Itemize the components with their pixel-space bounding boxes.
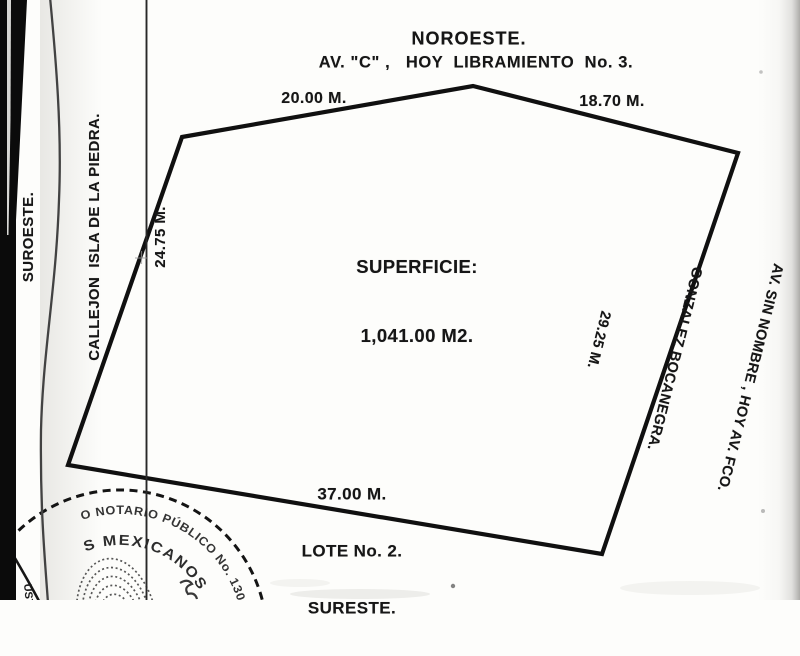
north-segment-right-dimension: 18.70 M. xyxy=(579,93,644,111)
east-street-label-line2: GONZALEZ BOCANEGRA. xyxy=(633,242,715,476)
south-lot-label: LOTE No. 2. xyxy=(302,542,403,561)
corner-stamp-text: UST. xyxy=(21,583,35,600)
north-segment-left-dimension: 20.00 M. xyxy=(281,90,346,108)
area-block: SUPERFICIE: 1,041.00 M2. xyxy=(356,209,478,393)
east-street-label-line1: AV. SIN NOMBRE , HOY AV. FCO. xyxy=(709,261,791,495)
west-side-labels: SUROESTE. CALLEJON ISLA DE LA PIEDRA. 24… xyxy=(0,113,216,361)
area-value: 1,041.00 M2. xyxy=(356,324,478,347)
south-side-labels: 37.00 M. LOTE No. 2. SURESTE. xyxy=(302,447,403,656)
west-direction-label: SUROESTE. xyxy=(18,113,40,361)
east-direction-label: NORESTE. xyxy=(785,279,800,513)
east-dimension-label: 29.25 M. xyxy=(558,223,640,457)
west-street-label: CALLEJON ISLA DE LA PIEDRA. xyxy=(84,113,106,361)
area-label: SUPERFICIE: xyxy=(356,255,478,278)
north-street-label: AV. "C" , HOY LIBRAMIENTO No. 3. xyxy=(319,54,633,73)
south-dimension-label: 37.00 M. xyxy=(302,485,403,504)
west-dimension-label: 24.75 M. xyxy=(150,113,172,361)
south-direction-label: SURESTE. xyxy=(302,599,403,618)
north-direction-label: NOROESTE. xyxy=(411,29,526,50)
seal-ring-text: O NOTARIO PÚBLICO No. 130 xyxy=(79,503,248,600)
scanned-plot-plan: O NOTARIO PÚBLICO No. 130 S MEXICANOS US… xyxy=(0,0,800,600)
